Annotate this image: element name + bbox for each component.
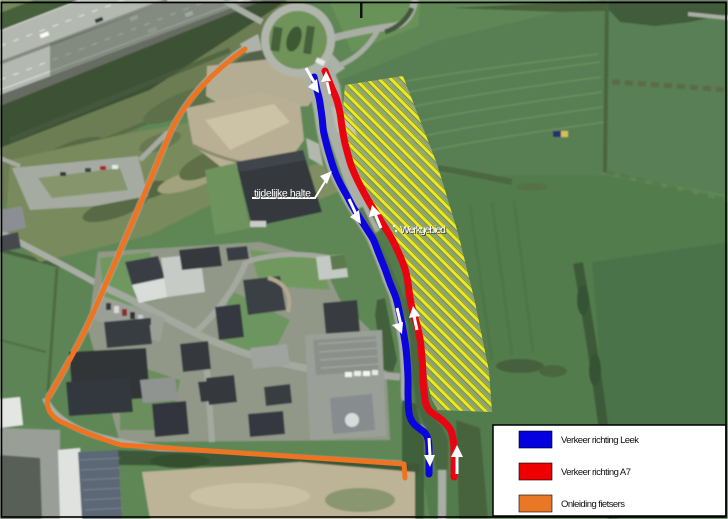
svg-text:tijdelijke halte: tijdelijke halte — [254, 188, 311, 200]
svg-text:Werkgebied: Werkgebied — [400, 224, 446, 236]
svg-text:Verkeer richting A7: Verkeer richting A7 — [561, 467, 631, 478]
svg-text:Verkeer richting Leek: Verkeer richting Leek — [561, 435, 639, 446]
svg-text:Onleiding fietsers: Onleiding fietsers — [561, 499, 625, 510]
